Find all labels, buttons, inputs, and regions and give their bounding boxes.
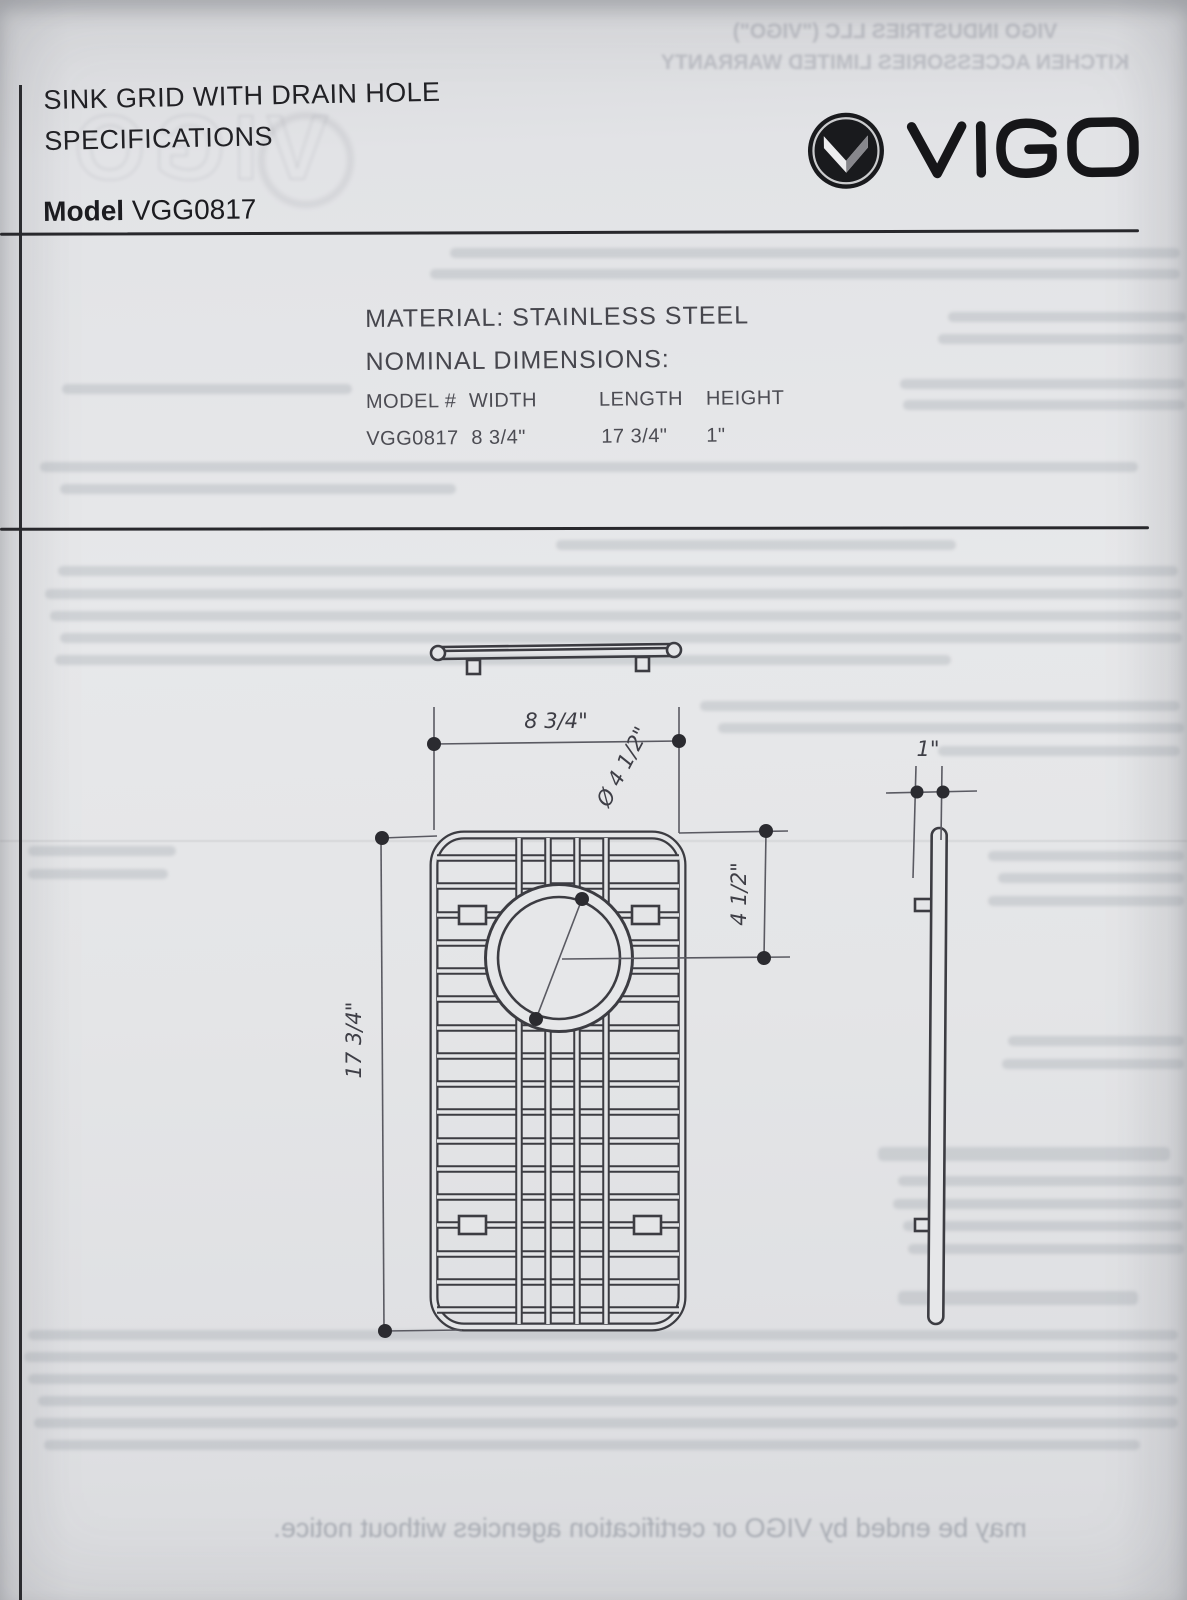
technical-drawing: 8 3/4" Ø 4 1/2" 4 1/2" 1" 17 3/4"	[0, 0, 1187, 1600]
dim-offset-label: 4 1/2"	[727, 862, 751, 926]
grid-plan-view	[434, 835, 682, 1327]
dim-length-label: 17 3/4"	[342, 1002, 366, 1079]
scanned-spec-sheet: VIGO INDUSTRIES LLC ("VIGO") KITCHEN ACC…	[0, 0, 1187, 1600]
grid-edge-view	[915, 828, 947, 1324]
dim-width-label: 8 3/4"	[524, 709, 588, 733]
dimension-dots	[375, 734, 950, 1338]
grid-side-view	[431, 643, 681, 674]
dim-diameter-label: Ø 4 1/2"	[591, 723, 653, 812]
dim-thickness-label: 1"	[916, 737, 939, 761]
